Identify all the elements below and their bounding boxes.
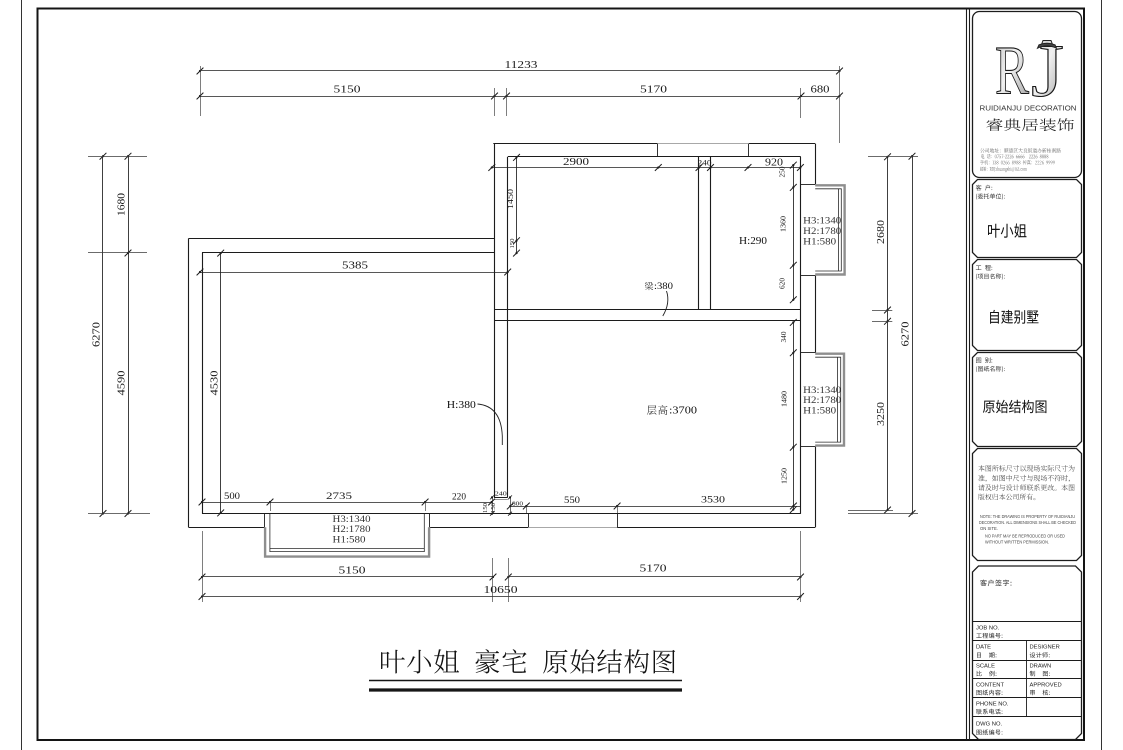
svg-text:3530: 3530 [701, 496, 725, 506]
svg-text:H3:1340: H3:1340 [803, 217, 841, 227]
svg-text:680: 680 [811, 85, 830, 96]
svg-text:5170: 5170 [640, 85, 667, 96]
svg-text:H3:1340: H3:1340 [803, 386, 841, 396]
svg-text:DATE: DATE [976, 645, 991, 651]
svg-text:150: 150 [483, 503, 489, 513]
svg-text:H2:1780: H2:1780 [803, 396, 841, 406]
svg-text:620: 620 [779, 277, 787, 289]
svg-text:CONTENT: CONTENT [976, 683, 1004, 689]
svg-text:1250: 1250 [780, 468, 789, 484]
svg-text:150: 150 [509, 239, 516, 249]
svg-text:2735: 2735 [326, 492, 352, 502]
svg-text:H3:1340: H3:1340 [333, 515, 371, 525]
svg-text:1680: 1680 [117, 193, 128, 216]
svg-text:1480: 1480 [780, 391, 789, 407]
svg-text:5170: 5170 [640, 564, 667, 575]
svg-text:1360: 1360 [779, 216, 788, 232]
svg-text:H1:580: H1:580 [333, 536, 366, 546]
svg-text:H2:1780: H2:1780 [333, 525, 371, 535]
svg-text:250: 250 [779, 166, 787, 178]
svg-text:2900: 2900 [563, 157, 589, 168]
svg-text:220: 220 [452, 493, 466, 503]
svg-text:ON SITE.: ON SITE. [980, 526, 998, 531]
svg-text:H1:580: H1:580 [803, 407, 836, 417]
svg-text:H2:1780: H2:1780 [803, 227, 841, 237]
svg-text:NOTE: THE DRAWING IS PROPERTY: NOTE: THE DRAWING IS PROPERTY OF RUIDIAN… [980, 514, 1075, 519]
svg-text:JOB NO.: JOB NO. [976, 626, 1000, 632]
svg-text:340: 340 [780, 331, 788, 343]
svg-text:150: 150 [491, 503, 497, 513]
svg-text:APPROVED: APPROVED [1030, 683, 1062, 689]
svg-text:240: 240 [698, 159, 712, 168]
svg-text:6270: 6270 [92, 322, 103, 347]
svg-text:800: 800 [512, 502, 523, 508]
svg-text:WITHOUT WRITTEN PERMISSION.: WITHOUT WRITTEN PERMISSION. [985, 540, 1049, 545]
svg-text:3250: 3250 [876, 402, 887, 426]
svg-text:4590: 4590 [117, 371, 128, 396]
svg-text:RUIDIANJU DECORATION: RUIDIANJU DECORATION [980, 104, 1077, 113]
svg-text:SCALE: SCALE [976, 664, 995, 670]
svg-text:10650: 10650 [484, 585, 518, 596]
svg-text:H:290: H:290 [739, 235, 768, 247]
svg-text:2680: 2680 [876, 220, 887, 244]
svg-text:PHONE NO.: PHONE NO. [976, 702, 1009, 708]
svg-text:NO PART MAY BE REPRODUCED OR U: NO PART MAY BE REPRODUCED OR USED [985, 534, 1066, 539]
svg-text:DRAWN: DRAWN [1030, 664, 1052, 670]
svg-text:R: R [995, 33, 1029, 110]
svg-text::380: :380 [654, 281, 674, 291]
svg-text:H:380: H:380 [447, 399, 477, 411]
svg-text:5150: 5150 [339, 566, 366, 577]
svg-text:H1:580: H1:580 [803, 237, 836, 247]
svg-text:DWG NO.: DWG NO. [976, 722, 1002, 728]
svg-text:5150: 5150 [334, 85, 361, 96]
svg-text:5385: 5385 [342, 261, 368, 272]
svg-text:4530: 4530 [210, 371, 221, 396]
svg-text:DESIGNER: DESIGNER [1030, 645, 1060, 651]
svg-text:240: 240 [495, 491, 507, 497]
svg-text:11233: 11233 [505, 60, 538, 71]
svg-text:500: 500 [224, 492, 240, 502]
svg-text:DECORATION. ALL DIMENSIONS SHA: DECORATION. ALL DIMENSIONS SHALL BE CHEC… [979, 520, 1077, 525]
svg-text:6270: 6270 [901, 322, 912, 347]
svg-text::3700: :3700 [669, 406, 697, 417]
svg-text:1450: 1450 [505, 189, 515, 209]
svg-text:550: 550 [564, 496, 580, 506]
